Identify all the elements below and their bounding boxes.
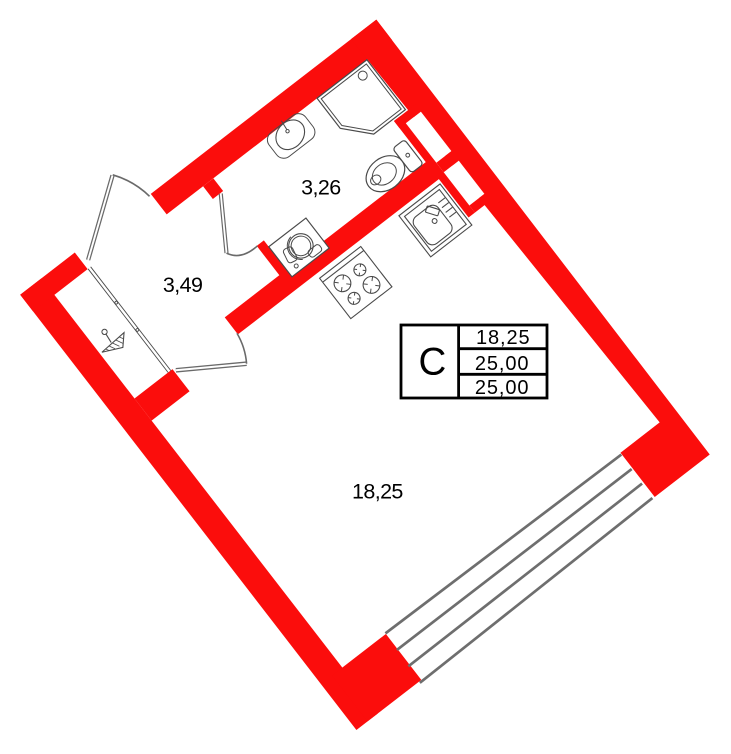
svg-text:С: С <box>418 341 446 384</box>
svg-text:18,25: 18,25 <box>352 480 403 504</box>
svg-text:25,00: 25,00 <box>475 353 530 375</box>
svg-text:3,49: 3,49 <box>163 273 202 297</box>
svg-text:18,25: 18,25 <box>476 327 531 349</box>
svg-text:25,00: 25,00 <box>475 377 530 399</box>
svg-text:3,26: 3,26 <box>301 176 341 200</box>
